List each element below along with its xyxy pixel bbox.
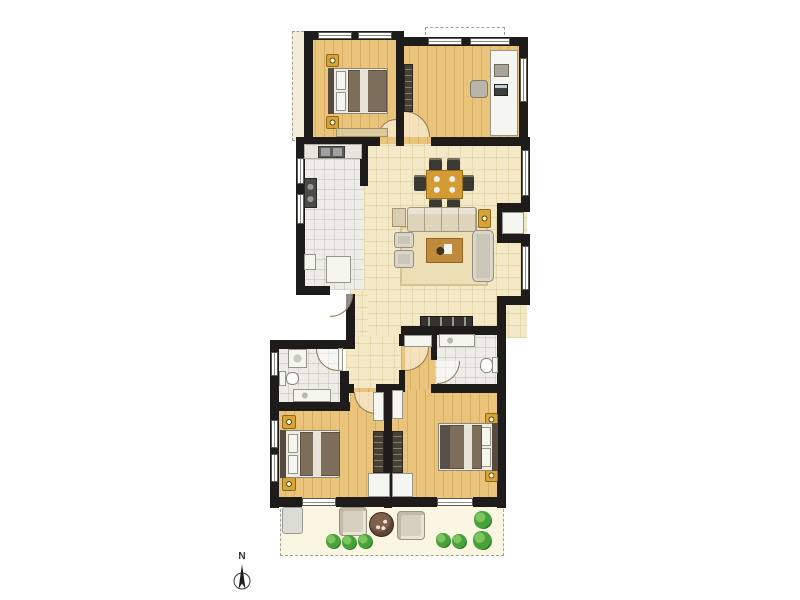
window [470, 38, 510, 45]
nightstand-lamp [282, 477, 296, 491]
toilet-bowl [480, 358, 493, 373]
wall-niche [502, 212, 524, 234]
window [297, 194, 304, 224]
bed-pillow [288, 455, 298, 474]
outdoor-round-table [369, 512, 394, 537]
wall-south-top-right [431, 137, 528, 146]
wall-divider-top-rooms [396, 37, 404, 146]
compass-icon [231, 562, 253, 592]
window-balcony-left [302, 498, 336, 506]
wardrobe-dark [404, 64, 413, 112]
outdoor-armchair [339, 507, 367, 536]
bed-runner [360, 70, 368, 112]
window-balcony-right [437, 498, 473, 506]
floor-plan [0, 0, 800, 600]
window [271, 420, 278, 448]
desk-lamp [494, 64, 509, 77]
bed-foot-bench [440, 425, 450, 469]
window [318, 32, 352, 39]
compass: N [229, 551, 255, 597]
dining-chair [414, 175, 426, 191]
door-leaf-bath-left [338, 348, 343, 371]
window [428, 38, 462, 45]
vestibule-cabinet [404, 335, 432, 347]
bed-runner [313, 432, 321, 476]
bed-headboard [492, 423, 498, 471]
ac-unit [282, 507, 303, 534]
floor-plan-page: N [0, 0, 800, 600]
wall-vestibule-west-b [399, 370, 405, 392]
window [520, 58, 527, 102]
toilet-bowl [286, 372, 299, 385]
bed-pillow [288, 434, 298, 453]
plant [358, 534, 373, 549]
wall-south-kitchen [296, 286, 330, 295]
sofa [407, 207, 477, 232]
bed-headboard [328, 68, 334, 114]
side-table [392, 208, 406, 227]
kitchen-sink [318, 146, 345, 158]
coffee-table [426, 238, 463, 263]
bath-vanity [439, 334, 475, 347]
bed-bench [336, 128, 388, 137]
toilet-tank [279, 371, 286, 386]
nightstand-lamp [326, 54, 339, 67]
plant [473, 531, 492, 550]
kitchen-cabinet [304, 254, 316, 270]
wall-hall-south-a [344, 384, 354, 393]
wall-east-bath-right [497, 296, 506, 392]
dresser-dark [373, 431, 384, 473]
window [271, 454, 278, 482]
wall-east-master [497, 384, 506, 508]
bed-pillow [481, 448, 491, 467]
bed-runner [464, 425, 472, 469]
fridge [326, 256, 351, 283]
plant [436, 533, 451, 548]
bed-pillow [481, 427, 491, 446]
wardrobe [392, 390, 403, 419]
wall-bath-left-south [270, 402, 350, 411]
dining-chair [462, 175, 474, 191]
window [522, 246, 529, 290]
wall-bath-right-south [431, 384, 506, 393]
dining-table [426, 170, 463, 199]
armchair [394, 250, 414, 268]
wardrobe [373, 392, 384, 421]
plant [474, 511, 492, 529]
plant [342, 535, 357, 550]
tv-console [420, 316, 473, 327]
outdoor-armchair [397, 511, 425, 540]
wall-west-bedroom2 [304, 31, 313, 146]
window [522, 150, 529, 196]
bath-vanity [293, 389, 331, 402]
bed-pillow [336, 71, 346, 90]
washing-machine [288, 349, 307, 368]
cabinet [368, 473, 390, 497]
plant [326, 534, 341, 549]
chaise-lounge [472, 230, 494, 282]
window [271, 352, 278, 376]
bed-headboard [280, 430, 286, 478]
compass-north-label: N [229, 551, 255, 562]
desk-chair [470, 80, 488, 98]
dresser-dark [392, 431, 403, 473]
stove [304, 178, 317, 208]
cabinet [392, 473, 413, 497]
plant [452, 534, 467, 549]
window [358, 32, 392, 39]
wall-south-bedroom3-a [270, 497, 302, 507]
window [297, 158, 304, 184]
armchair [394, 232, 414, 248]
bed-pillow [336, 92, 346, 111]
nightstand-lamp [282, 415, 296, 429]
laptop [494, 84, 508, 96]
wall-south-master-a [384, 497, 437, 507]
side-table-gold [478, 209, 491, 228]
